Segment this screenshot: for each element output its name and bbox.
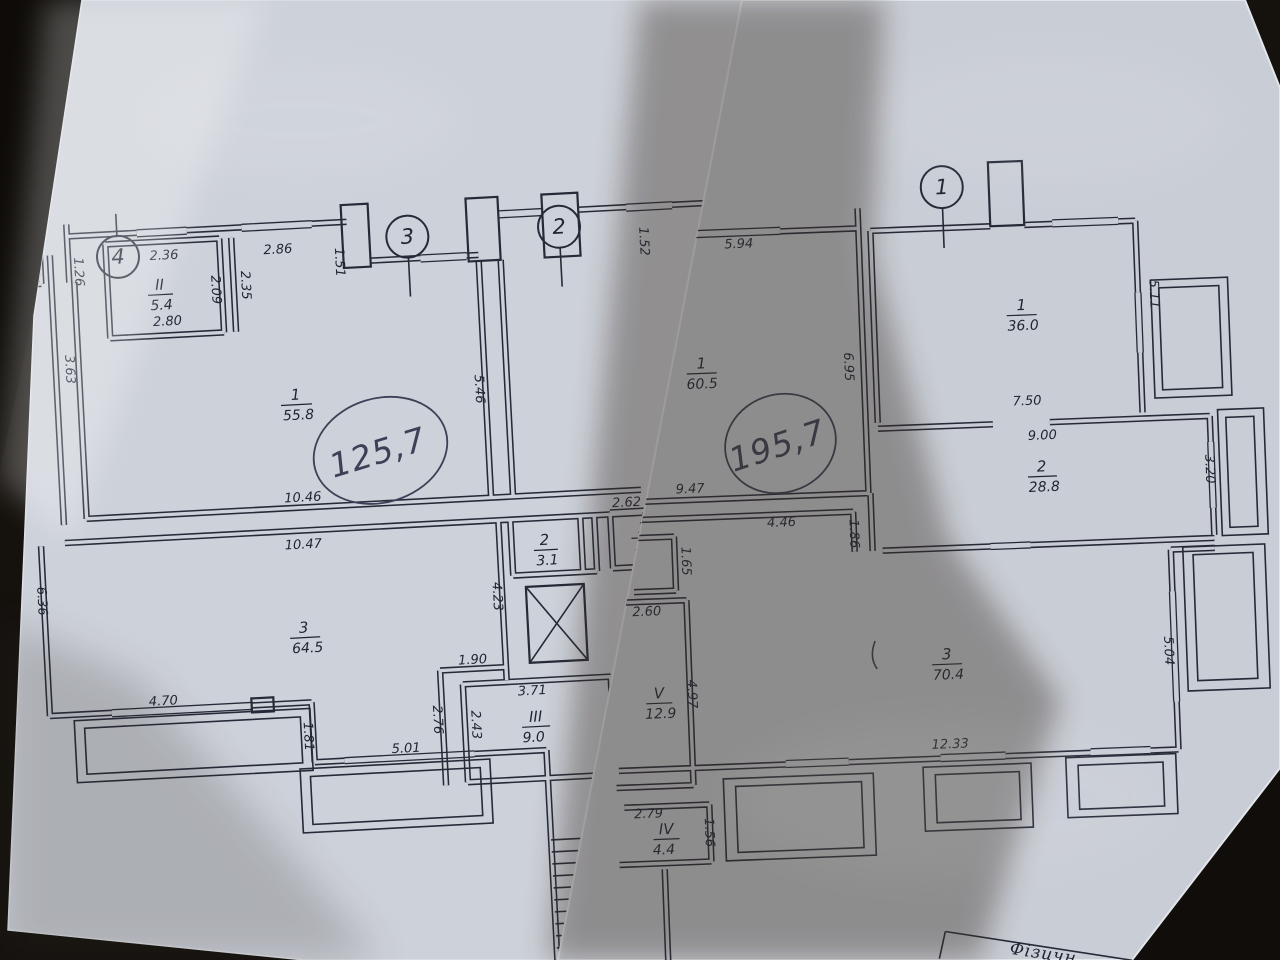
dim-label: 2.76 bbox=[429, 705, 445, 735]
svg-text:1: 1 bbox=[290, 385, 300, 403]
dim-label: 9.00 bbox=[1028, 428, 1058, 444]
dim-label: 10.47 bbox=[284, 537, 323, 554]
svg-text:2: 2 bbox=[1036, 457, 1046, 475]
dim-label: 5.46 bbox=[471, 374, 487, 404]
dim-label: 4.23 bbox=[489, 582, 505, 612]
dim-label: 2.35 bbox=[237, 270, 253, 300]
dim-label: 10.46 bbox=[284, 490, 322, 507]
dim-label: 2.80 bbox=[153, 314, 183, 330]
dim-label: 2.43 bbox=[467, 710, 483, 740]
dim-label: 7.50 bbox=[1012, 393, 1042, 409]
svg-text:28.8: 28.8 bbox=[1028, 479, 1060, 496]
axis-label-2: 2 bbox=[552, 214, 567, 239]
svg-text:2: 2 bbox=[539, 531, 549, 549]
svg-text:36.0: 36.0 bbox=[1007, 317, 1039, 334]
svg-text:3.1: 3.1 bbox=[536, 552, 559, 569]
dim-label: 6.36 bbox=[33, 586, 49, 616]
dim-label: 1.51 bbox=[331, 247, 347, 277]
dim-label: 1.90 bbox=[458, 652, 488, 668]
floor-plan-photo: 4 3 2 3.46 1.26 2.36 2.86 1.51 2.09 bbox=[0, 0, 1280, 960]
dim-label: 1.81 bbox=[300, 722, 316, 752]
svg-text:9.0: 9.0 bbox=[522, 729, 545, 746]
svg-text:64.5: 64.5 bbox=[292, 640, 324, 658]
dim-label: 2.86 bbox=[263, 242, 293, 258]
dim-label: 5.11 bbox=[1145, 279, 1161, 309]
svg-text:55.8: 55.8 bbox=[283, 407, 315, 425]
axis-label-1: 1 bbox=[935, 175, 949, 199]
axis-label-3: 3 bbox=[400, 224, 415, 249]
dim-label: 5.04 bbox=[1160, 636, 1176, 666]
dim-label: 5.01 bbox=[391, 741, 421, 757]
dim-label: 3.20 bbox=[1201, 454, 1217, 484]
dim-label: 2.09 bbox=[207, 275, 223, 305]
dim-label: 3.71 bbox=[517, 683, 547, 699]
svg-text:3: 3 bbox=[298, 618, 308, 636]
svg-text:III: III bbox=[529, 707, 544, 726]
svg-text:1: 1 bbox=[1016, 296, 1026, 314]
